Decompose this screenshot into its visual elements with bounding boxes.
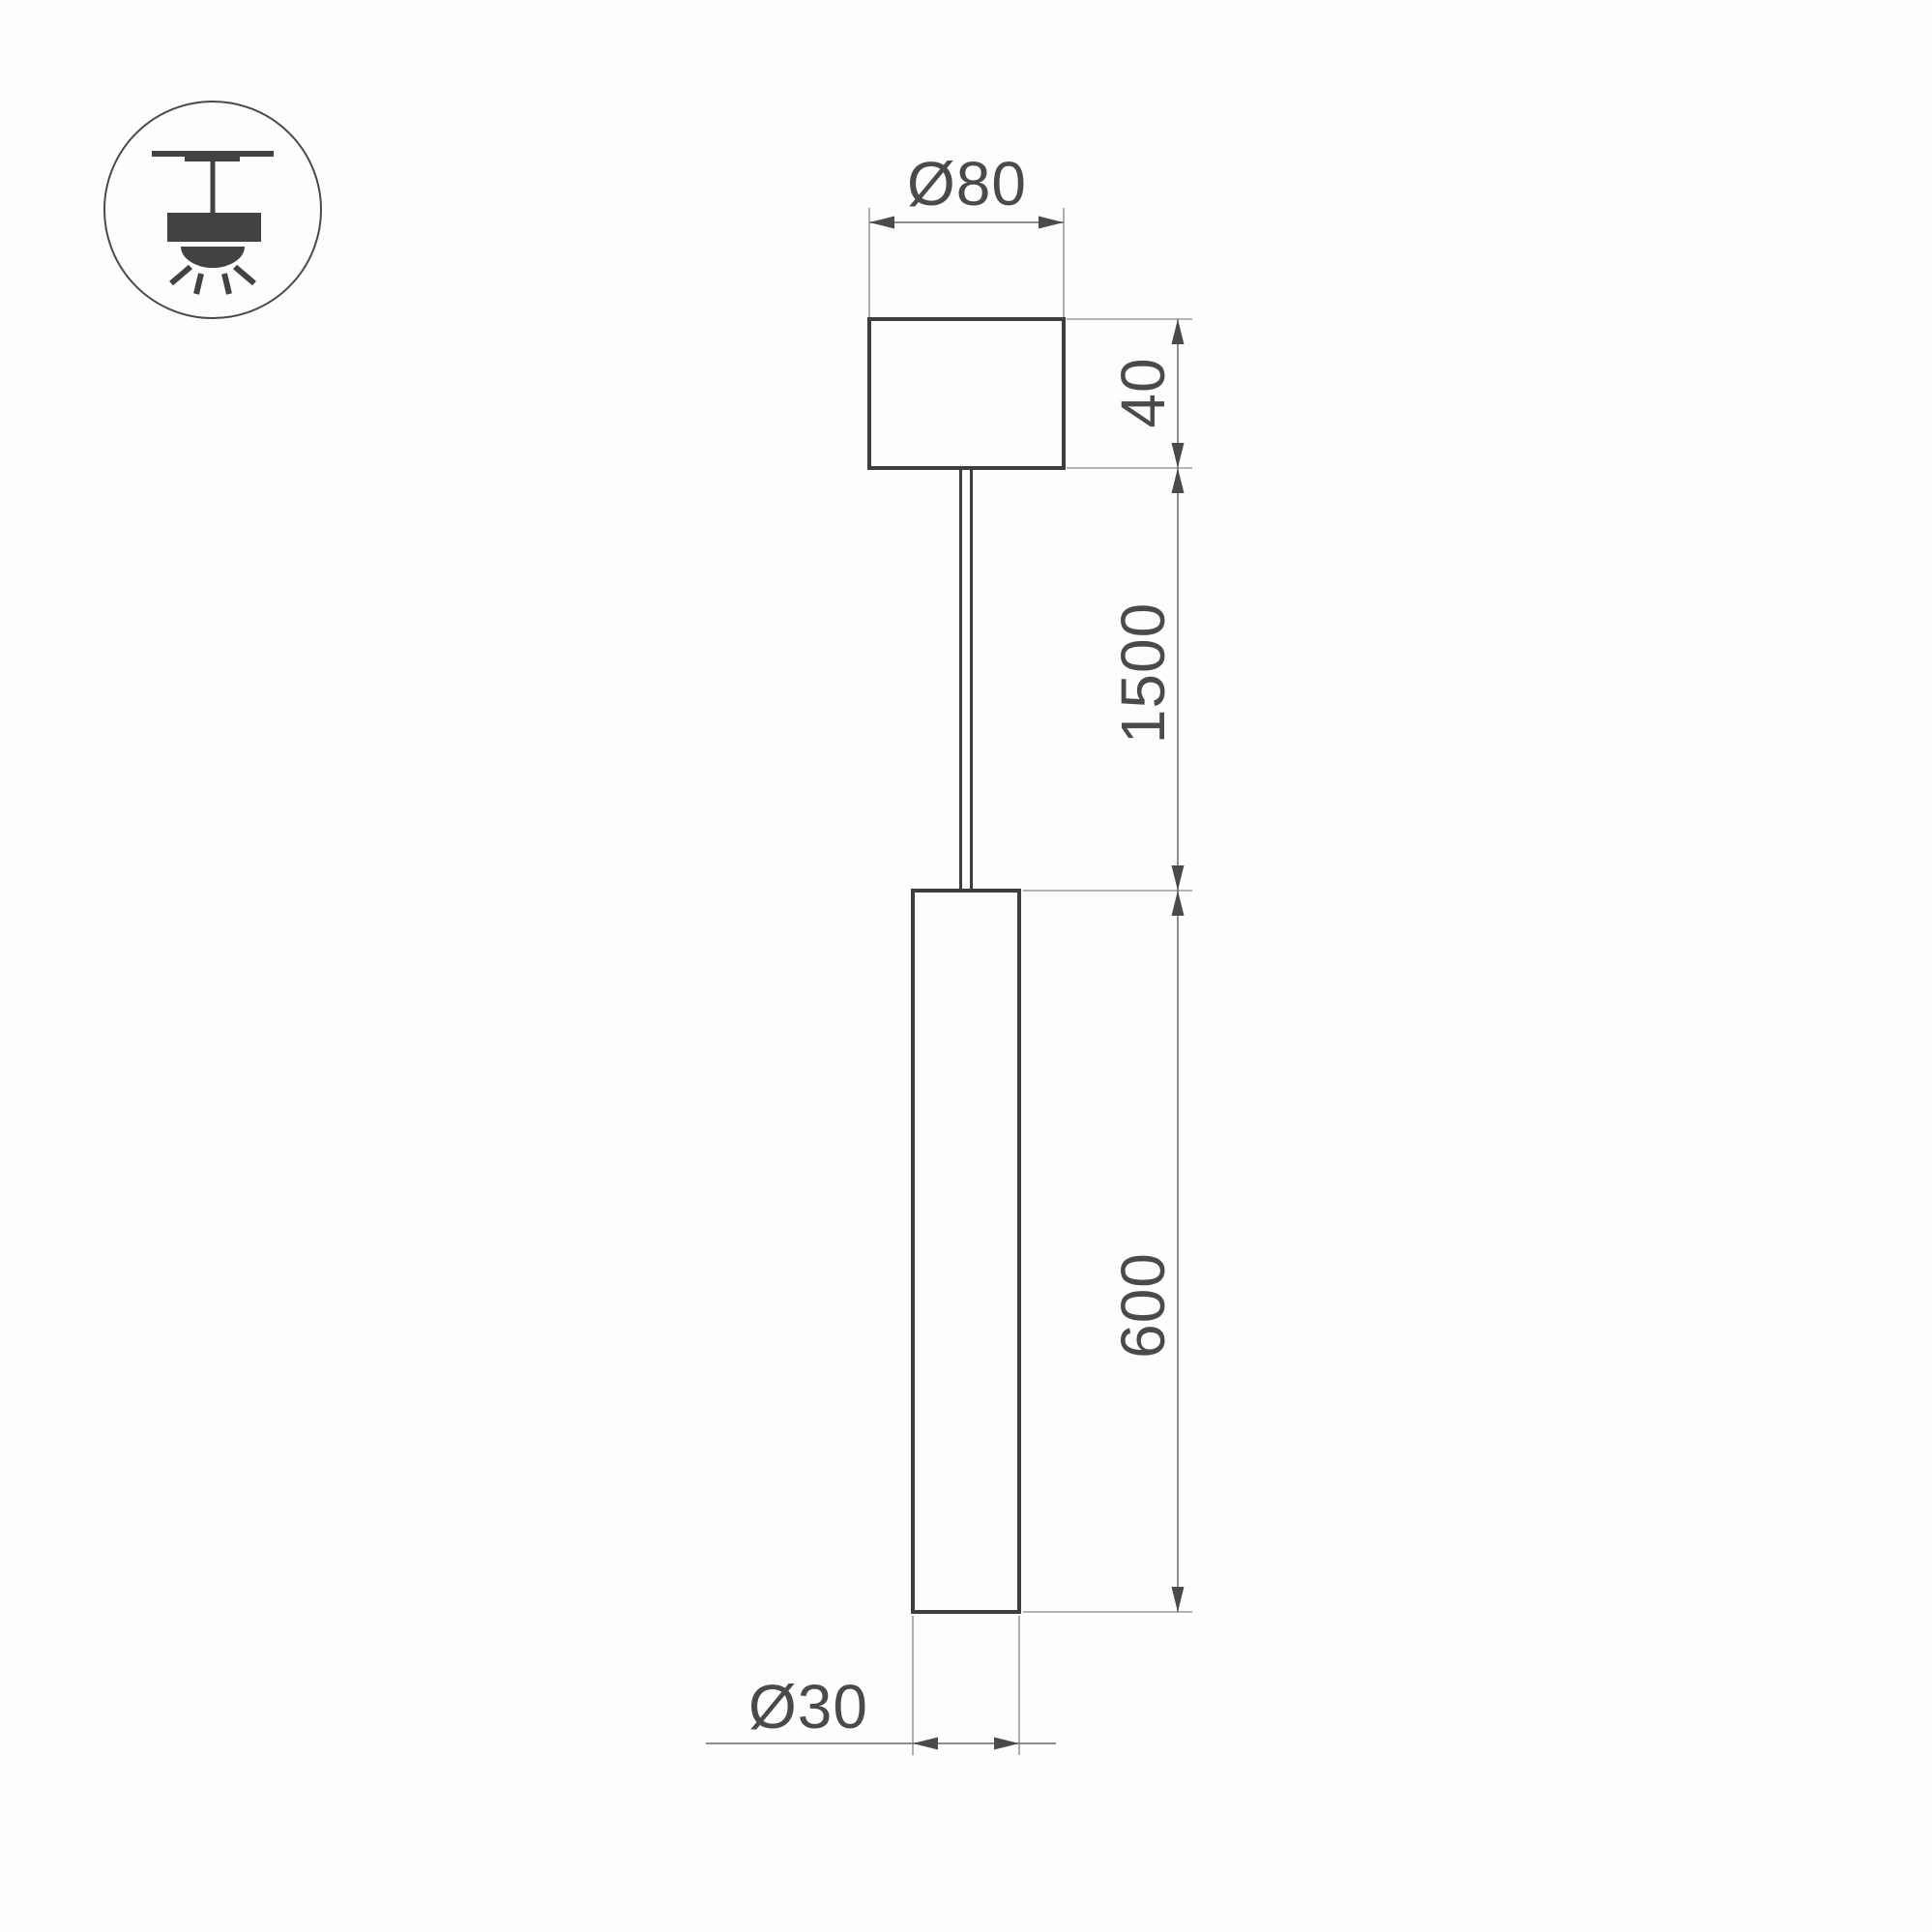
dim-label-body-diameter: Ø30 [748,1672,868,1742]
dim-label-canopy-diameter: Ø80 [907,149,1027,219]
lamp-tube-outline [913,891,1019,1612]
dim-label-body-length: 600 [1108,1252,1178,1359]
dim-label-suspension-length: 1500 [1108,602,1178,744]
dimension-drawing-canvas: Ø80 40 1500 600 Ø30 [0,0,1932,1932]
dim-label-canopy-height: 40 [1108,357,1178,427]
canopy-outline [869,319,1064,468]
icon-lamp-body [167,213,261,242]
